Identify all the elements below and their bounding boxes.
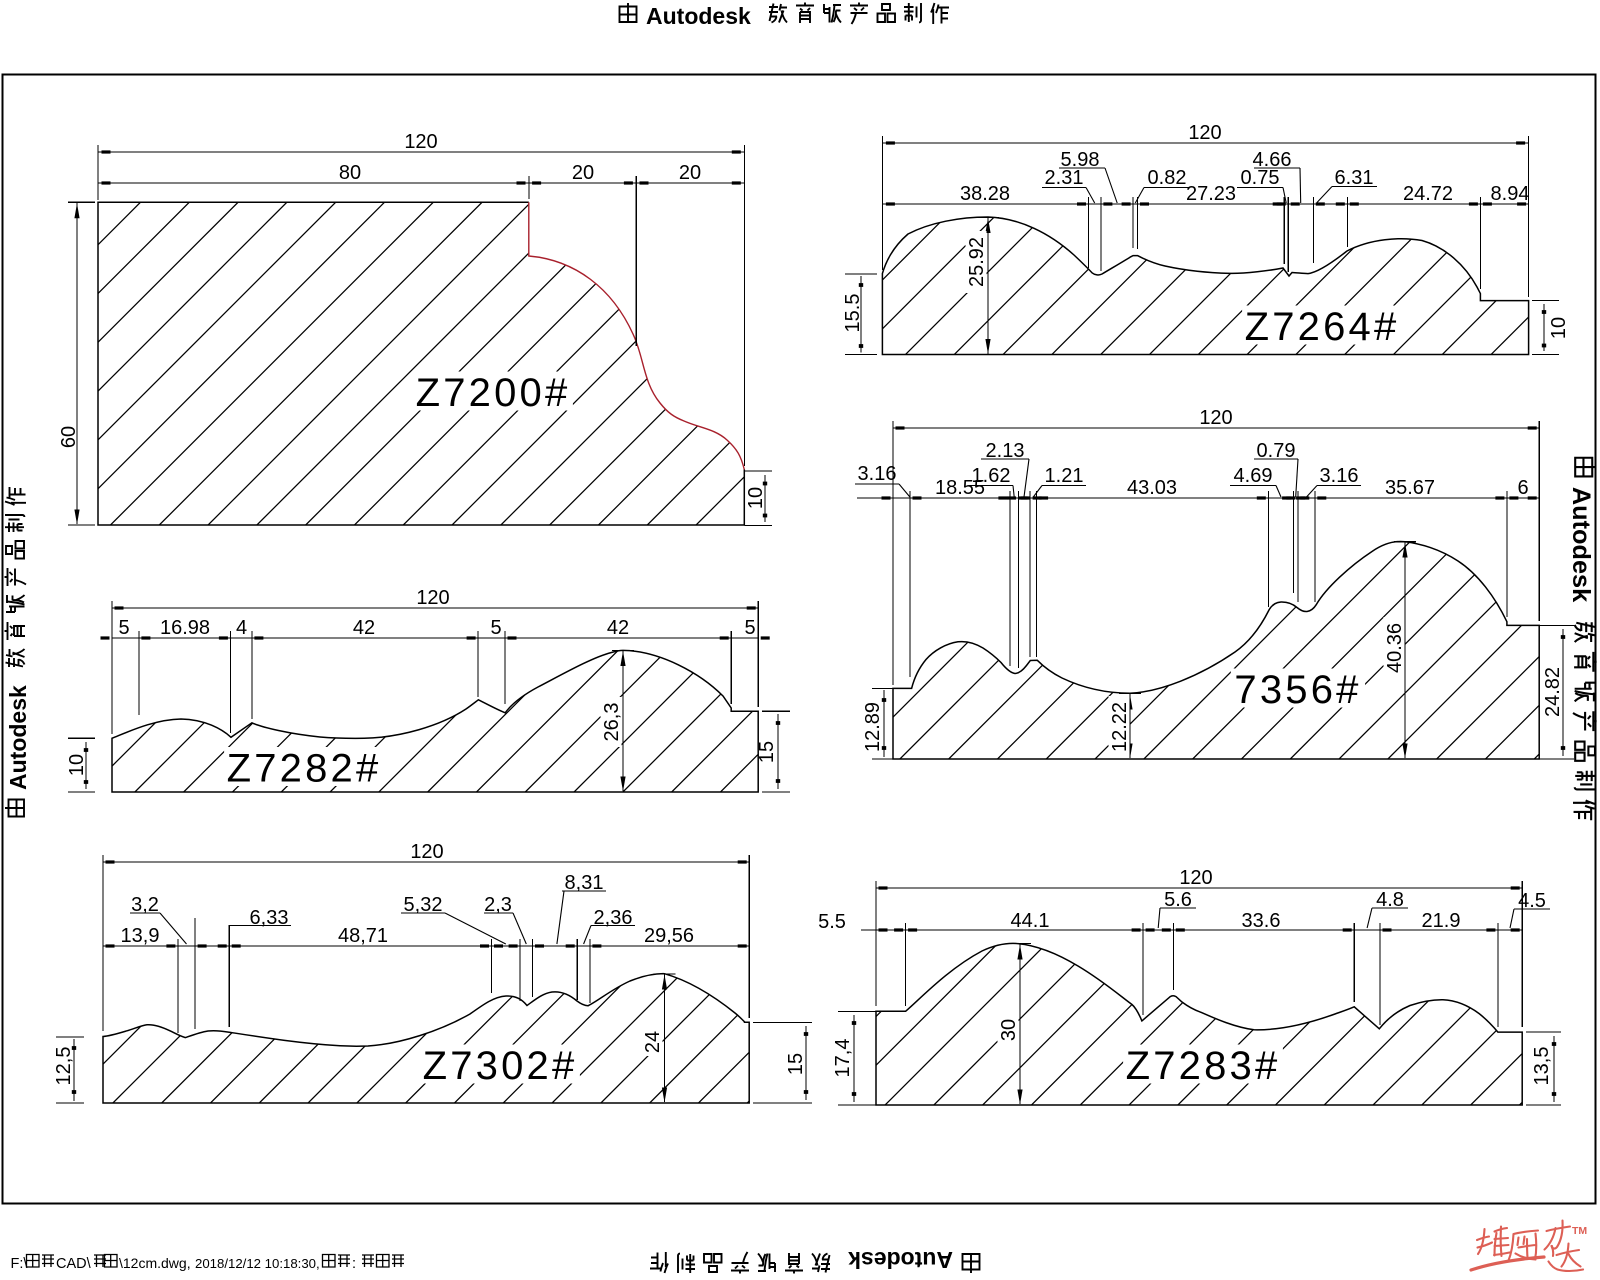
svg-text:8.94: 8.94 xyxy=(1491,183,1530,205)
svg-text:3.16: 3.16 xyxy=(1320,465,1359,487)
svg-text:35.67: 35.67 xyxy=(1385,477,1435,499)
svg-text:15: 15 xyxy=(785,1053,807,1075)
svg-text:40.36: 40.36 xyxy=(1384,623,1406,673)
svg-text:6: 6 xyxy=(1517,477,1528,499)
svg-text:120: 120 xyxy=(416,587,449,609)
svg-text:17,4: 17,4 xyxy=(832,1039,854,1078)
svg-text:12.89: 12.89 xyxy=(862,702,884,752)
svg-text:48,71: 48,71 xyxy=(338,925,388,947)
svg-text:20: 20 xyxy=(572,162,594,184)
svg-text:20: 20 xyxy=(679,162,701,184)
svg-text:42: 42 xyxy=(607,617,629,639)
svg-text:\12cm.dwg,: \12cm.dwg, xyxy=(119,1255,191,1271)
svg-text:Z7264#: Z7264# xyxy=(1245,305,1400,349)
svg-text:44.1: 44.1 xyxy=(1011,910,1050,932)
svg-text:4: 4 xyxy=(236,617,247,639)
svg-text:12,5: 12,5 xyxy=(53,1047,75,1086)
svg-text:120: 120 xyxy=(1188,122,1221,144)
svg-text:30: 30 xyxy=(998,1019,1020,1041)
svg-text:120: 120 xyxy=(410,841,443,863)
svg-text:1.62: 1.62 xyxy=(972,465,1011,487)
svg-text:25.92: 25.92 xyxy=(966,237,988,287)
svg-text:42: 42 xyxy=(353,617,375,639)
svg-text:4.69: 4.69 xyxy=(1234,465,1273,487)
svg-text:10: 10 xyxy=(1548,317,1570,339)
svg-text:80: 80 xyxy=(339,162,361,184)
svg-text:33.6: 33.6 xyxy=(1242,910,1281,932)
svg-text:26,3: 26,3 xyxy=(601,703,623,742)
svg-text:43.03: 43.03 xyxy=(1127,477,1177,499)
svg-text:Z7302#: Z7302# xyxy=(423,1044,578,1088)
svg-text:5: 5 xyxy=(118,617,129,639)
svg-text:120: 120 xyxy=(1199,407,1232,429)
svg-text:60: 60 xyxy=(58,426,80,448)
svg-text:120: 120 xyxy=(404,131,437,153)
svg-text:24.82: 24.82 xyxy=(1542,667,1564,717)
svg-text:24: 24 xyxy=(642,1031,664,1053)
svg-text:13,9: 13,9 xyxy=(121,925,160,947)
svg-text:7356#: 7356# xyxy=(1234,668,1361,712)
svg-text:16.98: 16.98 xyxy=(160,617,210,639)
svg-text:0.82: 0.82 xyxy=(1148,167,1187,189)
svg-text:10: 10 xyxy=(745,487,767,509)
svg-text:5.5: 5.5 xyxy=(818,911,846,933)
svg-text:F:\: F:\ xyxy=(11,1256,29,1272)
svg-text:CAD\: CAD\ xyxy=(56,1256,92,1272)
svg-text:1.21: 1.21 xyxy=(1045,465,1084,487)
svg-text:24.72: 24.72 xyxy=(1403,183,1453,205)
svg-text:13,5: 13,5 xyxy=(1531,1047,1553,1086)
svg-text:5: 5 xyxy=(744,617,755,639)
svg-text:3.16: 3.16 xyxy=(858,463,897,485)
svg-text:27.23: 27.23 xyxy=(1186,183,1236,205)
svg-text:120: 120 xyxy=(1179,867,1212,889)
svg-text:Z7200#: Z7200# xyxy=(416,371,571,415)
svg-text:38.28: 38.28 xyxy=(960,183,1010,205)
svg-text:21.9: 21.9 xyxy=(1422,910,1461,932)
svg-text::: : xyxy=(352,1256,356,1272)
svg-text:2018/12/12 10:18:30,: 2018/12/12 10:18:30, xyxy=(195,1256,320,1271)
svg-text:Z7283#: Z7283# xyxy=(1126,1044,1281,1088)
svg-text:TM: TM xyxy=(1572,1225,1587,1237)
svg-text:29,56: 29,56 xyxy=(644,925,694,947)
svg-text:5: 5 xyxy=(490,617,501,639)
svg-text:15.5: 15.5 xyxy=(842,294,864,333)
svg-text:12.22: 12.22 xyxy=(1109,702,1131,752)
svg-text:15: 15 xyxy=(756,741,778,763)
svg-text:Z7282#: Z7282# xyxy=(227,747,382,791)
svg-text:10: 10 xyxy=(66,754,88,776)
svg-text:6.31: 6.31 xyxy=(1335,167,1374,189)
